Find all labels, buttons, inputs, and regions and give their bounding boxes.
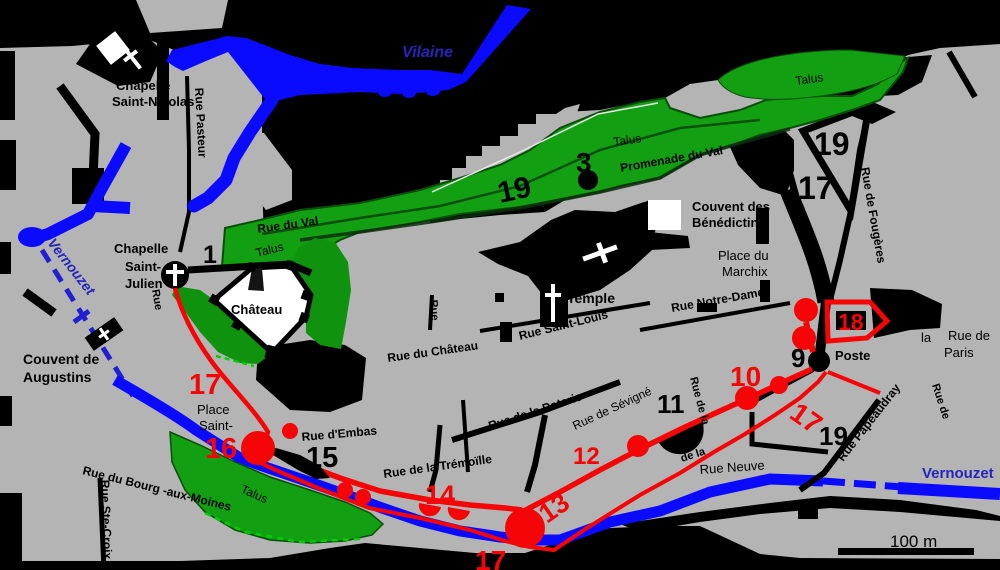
svg-text:19: 19 xyxy=(495,171,535,210)
svg-text:Place du: Place du xyxy=(718,248,769,263)
svg-text:Chapelle: Chapelle xyxy=(116,78,170,93)
svg-text:17: 17 xyxy=(189,369,221,401)
svg-text:la: la xyxy=(921,330,932,345)
svg-text:Saint-Nicolas: Saint-Nicolas xyxy=(112,94,194,109)
svg-text:Vernouzet: Vernouzet xyxy=(922,465,994,482)
svg-text:18: 18 xyxy=(838,309,864,335)
svg-text:Paris: Paris xyxy=(944,345,974,360)
svg-text:17: 17 xyxy=(475,545,506,570)
svg-text:10: 10 xyxy=(730,361,761,392)
svg-text:1: 1 xyxy=(203,241,217,269)
svg-text:19: 19 xyxy=(819,421,848,451)
svg-text:Bénédictins: Bénédictins xyxy=(692,215,766,230)
svg-text:Vilaine: Vilaine xyxy=(402,44,453,61)
svg-text:Saint-: Saint- xyxy=(125,259,161,274)
svg-text:Augustins: Augustins xyxy=(23,369,92,385)
svg-text:19: 19 xyxy=(814,126,850,162)
svg-text:Rue: Rue xyxy=(427,299,441,321)
svg-text:Rue de: Rue de xyxy=(948,328,990,343)
svg-text:Chapelle: Chapelle xyxy=(114,241,168,256)
svg-text:Place: Place xyxy=(197,402,230,417)
svg-text:11: 11 xyxy=(657,389,685,419)
svg-text:Couvent de: Couvent de xyxy=(23,351,99,367)
svg-text:Marchix: Marchix xyxy=(722,264,768,279)
svg-text:9: 9 xyxy=(791,343,805,373)
svg-text:16: 16 xyxy=(205,433,237,465)
svg-text:17: 17 xyxy=(798,170,834,206)
svg-text:3: 3 xyxy=(576,147,592,178)
svg-text:15: 15 xyxy=(306,442,338,474)
svg-text:Temple: Temple xyxy=(567,290,615,306)
svg-text:Couvent des: Couvent des xyxy=(692,199,770,214)
svg-text:100 m: 100 m xyxy=(890,532,937,551)
svg-text:Rue Ste-Croix: Rue Ste-Croix xyxy=(98,480,115,560)
svg-text:14: 14 xyxy=(425,480,455,510)
svg-text:Poste: Poste xyxy=(835,348,870,363)
svg-text:Saint-: Saint- xyxy=(199,418,233,433)
svg-text:Château: Château xyxy=(231,302,282,317)
svg-text:12: 12 xyxy=(573,443,600,470)
